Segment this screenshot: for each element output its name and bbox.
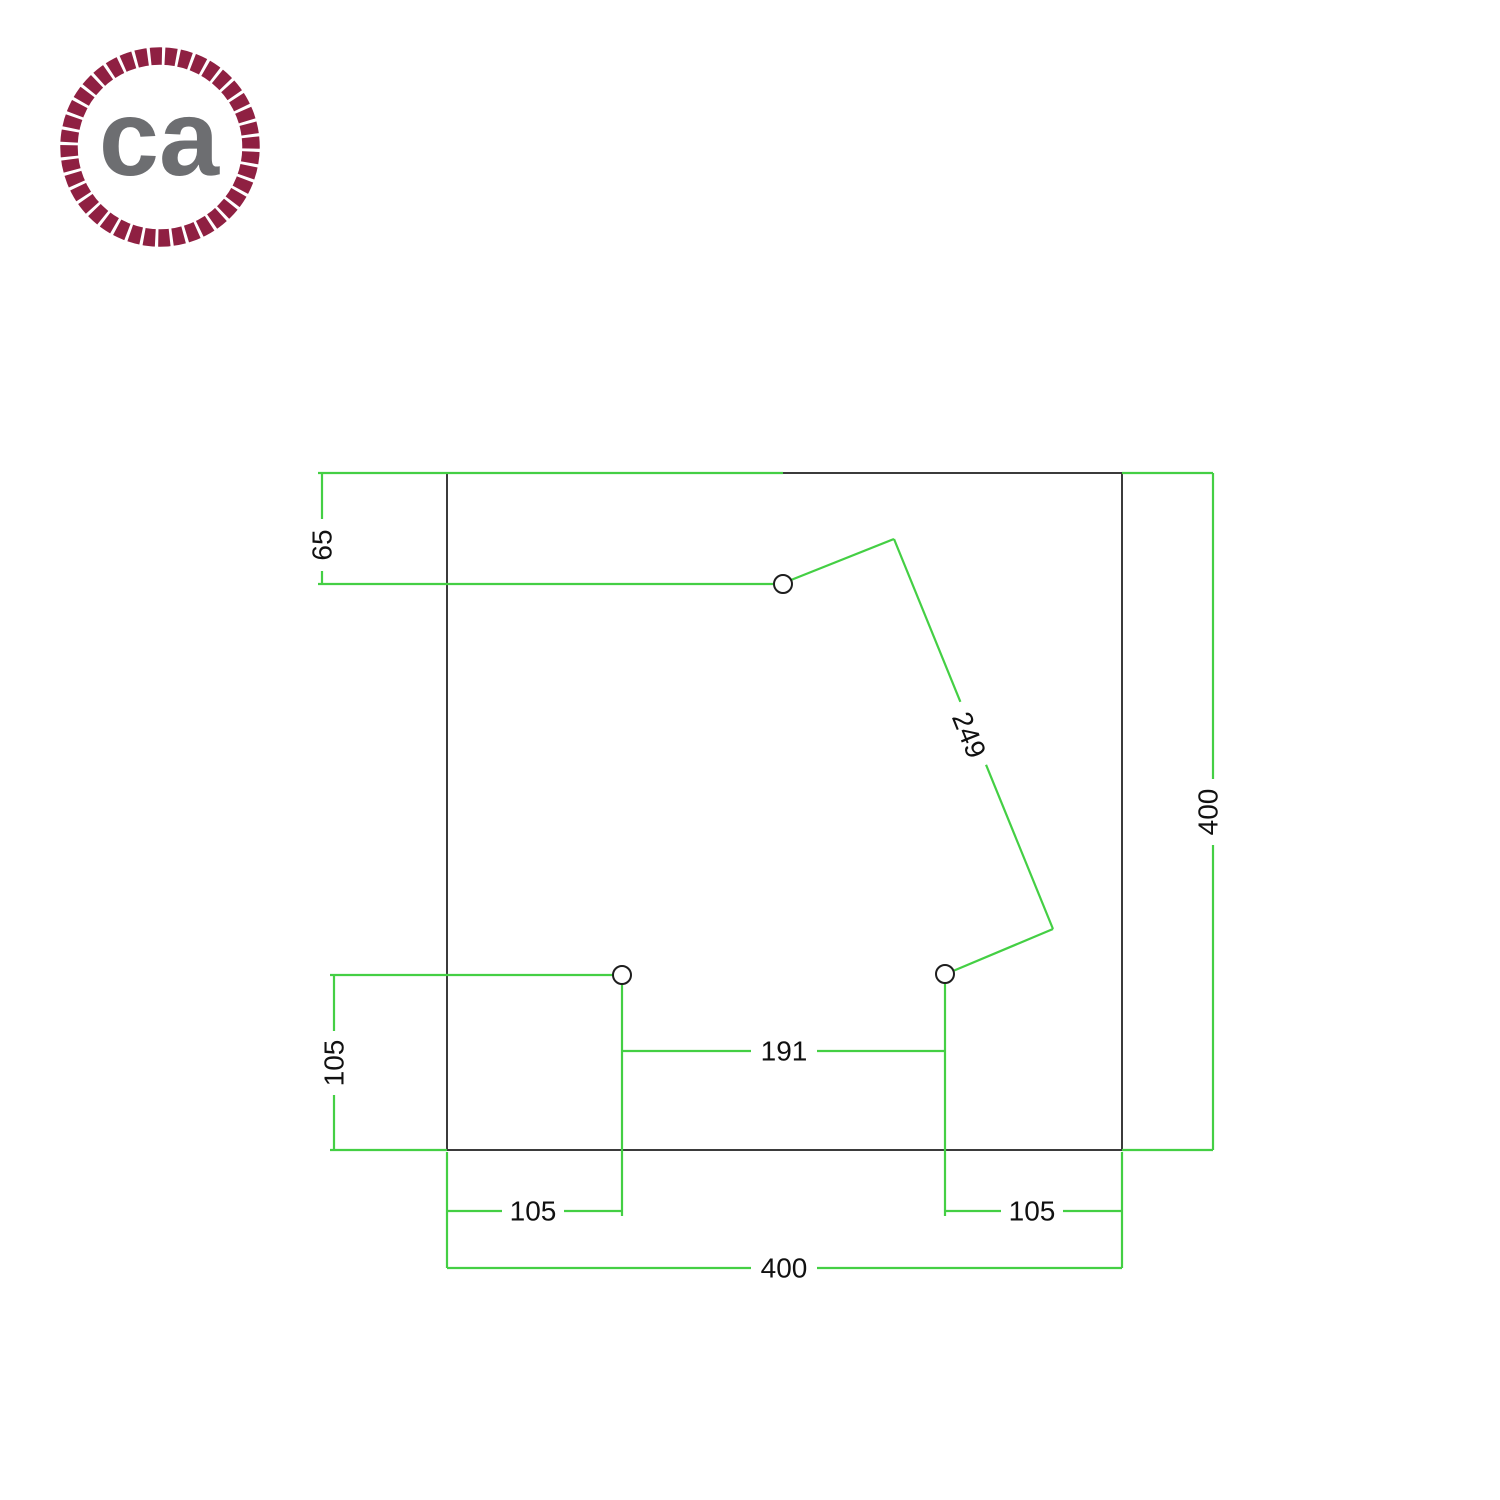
dim-label-105-bottom-left: 105 [502,1196,564,1227]
dimension-drawing-canvas: ca [0,0,1500,1500]
hole-bottom-right [936,965,954,983]
brand-logo: ca [57,44,263,250]
dim-65-top-hole [318,473,783,584]
svg-text:105: 105 [510,1196,557,1227]
svg-text:400: 400 [761,1253,808,1284]
svg-text:105: 105 [1009,1196,1056,1227]
dim-105-left-vertical [330,975,613,1150]
dim-label-105-left: 105 [319,1031,350,1095]
svg-text:105: 105 [319,1040,350,1087]
dim-249-diagonal [791,539,1053,971]
dim-label-105-bottom-right: 105 [1001,1196,1063,1227]
hole-top [774,575,792,593]
dim-label-249: 249 [942,698,996,773]
dim-extension-line [953,929,1053,971]
svg-text:191: 191 [761,1036,808,1067]
dim-label-400-width: 400 [751,1253,817,1284]
hole-bottom-left [613,966,631,984]
dim-extension-line [791,539,894,580]
dim-label-191: 191 [751,1036,817,1067]
svg-text:65: 65 [307,529,338,560]
dim-label-65: 65 [307,519,338,571]
dim-label-400-height: 400 [1192,779,1224,845]
brand-logo-text: ca [99,77,220,198]
svg-text:400: 400 [1193,789,1224,836]
page: ca [0,0,1500,1500]
